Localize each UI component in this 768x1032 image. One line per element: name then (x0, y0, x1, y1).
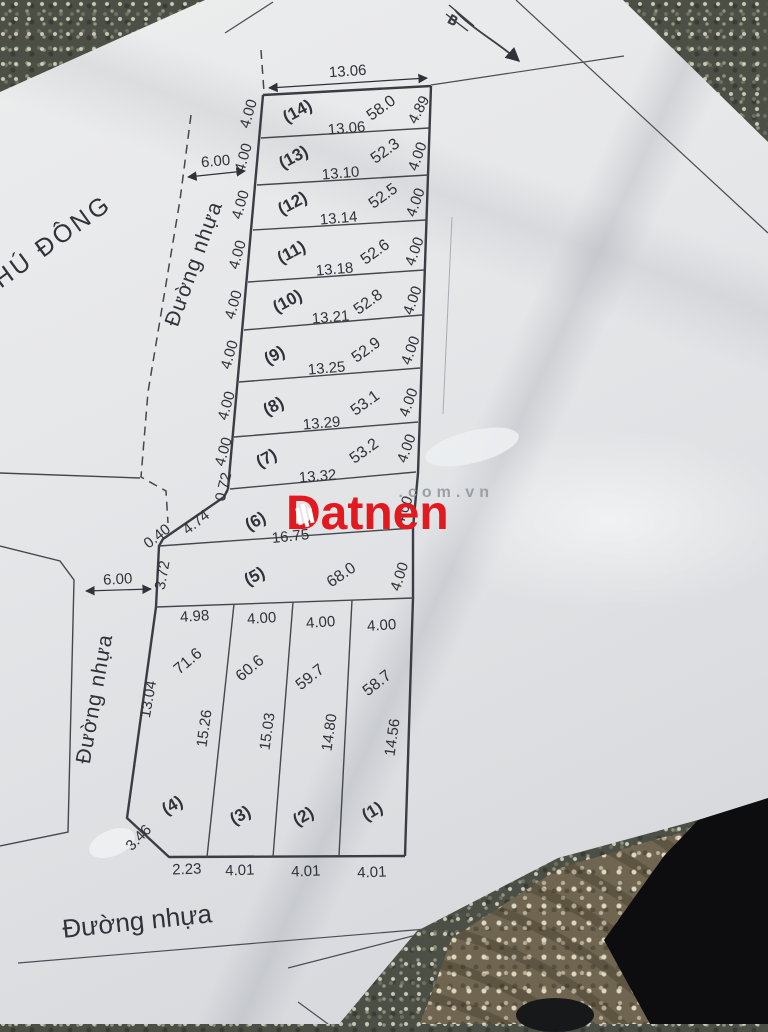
lot3-area: 60.6 (233, 652, 268, 685)
lot14-left-dim: 4.00 (236, 97, 260, 130)
lot11-left-dim: 4.00 (225, 238, 249, 271)
photo-of-land-plot-map: { "watermark": { "brand": "Datnen", "suf… (0, 0, 768, 1024)
lot5-labels: (5) 68.0 3.72 4.00 (152, 559, 413, 593)
lot12-area: 52.5 (366, 180, 401, 212)
lot14-bottom-dim: 13.06 (327, 118, 366, 138)
lot14-area: 58.0 (364, 92, 399, 124)
road-left-name: Đường nhựa (72, 632, 117, 765)
lot7-number: (7) (253, 445, 280, 472)
lot9-area: 52.9 (349, 334, 384, 366)
lot10-area: 52.8 (351, 286, 386, 318)
lot14-number: (14) (280, 96, 316, 127)
block-top-width-2: 4.00 (247, 609, 277, 628)
lot6-edge1-dim: 0.72 (212, 471, 236, 503)
dark-shadow-blob (516, 998, 594, 1032)
lot13-number: (13) (276, 142, 312, 173)
road-top-name: Đường nhựa (161, 198, 228, 329)
lot13-right-dim: 4.00 (405, 140, 431, 173)
lot11-area: 52.6 (358, 236, 393, 268)
lot2-area: 59.7 (293, 661, 328, 694)
lot5-right-dim: 4.00 (387, 560, 412, 593)
lot10-right-dim: 4.00 (400, 284, 426, 317)
lot7-area: 53.2 (347, 435, 382, 467)
lot1-side-length: 14.56 (382, 718, 404, 758)
lot8-right-dim: 4.00 (396, 386, 422, 419)
lot7-right-dim: 4.00 (394, 432, 420, 465)
lot11-bottom-dim: 13.18 (315, 259, 354, 279)
block-top-width-1: 4.98 (180, 607, 210, 626)
lot6-edge3-dim: 0.40 (140, 521, 173, 552)
lot13-left-dim: 4.00 (231, 141, 255, 174)
lot9-number: (9) (261, 342, 288, 369)
block-top-width-4: 4.00 (367, 616, 397, 635)
road-bottom-name: Đường nhựa (61, 898, 214, 944)
lot12-left-dim: 4.00 (228, 188, 252, 221)
whiteout-blob (422, 420, 523, 474)
lot9-bottom-dim: 13.25 (307, 358, 346, 378)
lot9-right-dim: 4.00 (398, 334, 424, 367)
block-corner-dim: 3.46 (123, 821, 156, 854)
block-bottom-width-2: 4.01 (225, 861, 255, 879)
lot10-number: (10) (270, 286, 306, 317)
place-name: HÚ ĐÔNG (0, 189, 117, 294)
lot3-number: (3) (227, 802, 254, 829)
block-bottom-width-4: 4.01 (357, 863, 387, 881)
lot6-number: (6) (242, 508, 269, 535)
lot4-area: 71.6 (171, 645, 206, 678)
lot6-labels: (6) 16.75 0.72 4.74 0.40 4.00 (140, 471, 416, 552)
block-top-width-3: 4.00 (306, 613, 336, 632)
road-left-width: 6.00 (103, 570, 133, 589)
lot5-area: 68.0 (324, 559, 359, 591)
lot8-number: (8) (260, 393, 287, 420)
adjacent-parcel-lines (0, 473, 140, 846)
top-dimension-label: 13.06 (328, 62, 367, 82)
lot5-left-dim: 3.72 (152, 559, 174, 591)
road-top-width: 6.00 (200, 152, 231, 171)
lot4-number: (4) (159, 792, 186, 819)
lot12-number: (12) (275, 188, 311, 219)
lot3-side-length: 15.03 (257, 712, 279, 752)
lot6-bottom-dim: 16.75 (271, 526, 310, 547)
lot4-side-length: 15.26 (194, 709, 216, 749)
block-bottom-width-3: 4.01 (291, 862, 321, 880)
lot13-area: 52.3 (368, 135, 403, 167)
lot7-left-dim: 4.00 (211, 435, 235, 468)
north-arrow-icon: B (446, 5, 519, 61)
block-bottom-width-1: 2.23 (172, 860, 202, 878)
lot13-bottom-dim: 13.10 (321, 163, 360, 183)
lot1-number: (1) (359, 798, 386, 825)
lot10-bottom-dim: 13.21 (311, 307, 350, 327)
block-lot-labels: 4.98 4.00 4.00 4.00 13.04 3.46 71.6 60.6… (123, 607, 404, 881)
lot11-number: (11) (274, 237, 309, 268)
lot5-number: (5) (241, 563, 268, 590)
lot2-number: (2) (290, 803, 317, 830)
lot2-side-length: 14.80 (319, 713, 341, 753)
lot8-bottom-dim: 13.29 (302, 413, 341, 433)
pen-crease-line (443, 217, 452, 414)
lot12-bottom-dim: 13.14 (319, 208, 358, 228)
lot7-bottom-dim: 13.32 (298, 466, 337, 486)
north-letter: B (446, 11, 461, 28)
lot8-area: 53.1 (348, 387, 383, 419)
block-left-length: 13.04 (137, 679, 160, 719)
lot6-edge2-dim: 4.74 (179, 507, 212, 538)
lot12-right-dim: 4.00 (403, 186, 429, 219)
lot1-area: 58.7 (360, 667, 395, 700)
